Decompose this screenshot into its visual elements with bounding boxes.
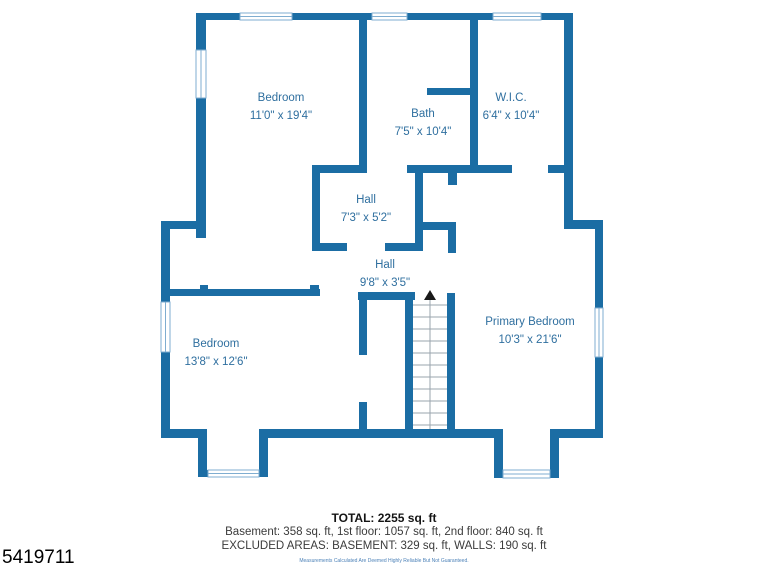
window-left-bay	[208, 470, 259, 477]
disclaimer-text: Measurements Calculated Are Deemed Highl…	[0, 557, 768, 565]
room-dims-bedroom-lower: 13'8" x 12'6"	[184, 356, 247, 368]
stairs-up-arrow-icon	[424, 290, 436, 300]
window-right-primary-bedroom	[595, 308, 603, 357]
room-dims-bedroom-upper: 11'0" x 19'4"	[250, 110, 312, 122]
room-dims-hall-lower: 9'8" x 3'5"	[360, 277, 410, 289]
room-labels: Bedroom 11'0" x 19'4" Bath 7'5" x 10'4" …	[184, 92, 574, 368]
room-dims-wic: 6'4" x 10'4"	[483, 110, 540, 122]
room-label-bedroom-lower: Bedroom	[193, 338, 240, 350]
window-left-lower-bedroom	[161, 302, 170, 352]
window-left-upper-bedroom	[196, 50, 206, 98]
room-label-bedroom-upper: Bedroom	[258, 92, 305, 104]
staircase	[413, 300, 447, 429]
area-summary: TOTAL: 2255 sq. ft Basement: 358 sq. ft,…	[0, 511, 768, 565]
floorplan-page: Bedroom 11'0" x 19'4" Bath 7'5" x 10'4" …	[0, 0, 768, 576]
room-dims-primary-bedroom: 10'3" x 21'6"	[498, 334, 561, 346]
windows	[161, 13, 603, 478]
floorplan-drawing: Bedroom 11'0" x 19'4" Bath 7'5" x 10'4" …	[0, 0, 768, 576]
excluded-areas-text: EXCLUDED AREAS: BASEMENT: 329 sq. ft, WA…	[0, 539, 768, 553]
window-top-wic	[493, 13, 541, 20]
walls	[161, 13, 603, 478]
room-dims-bath: 7'5" x 10'4"	[395, 126, 452, 138]
room-label-bath: Bath	[411, 108, 435, 120]
window-top-bath	[372, 13, 407, 20]
room-label-wic: W.I.C.	[495, 92, 526, 104]
window-top-bedroom	[240, 13, 292, 20]
floor-areas-text: Basement: 358 sq. ft, 1st floor: 1057 sq…	[0, 525, 768, 539]
total-area-text: TOTAL: 2255 sq. ft	[0, 511, 768, 525]
room-label-hall-upper: Hall	[356, 194, 376, 206]
room-dims-hall-upper: 7'3" x 5'2"	[341, 212, 391, 224]
window-right-bay	[503, 470, 550, 478]
room-label-hall-lower: Hall	[375, 259, 395, 271]
room-label-primary-bedroom: Primary Bedroom	[485, 316, 574, 328]
listing-id: 5419711	[2, 547, 75, 569]
